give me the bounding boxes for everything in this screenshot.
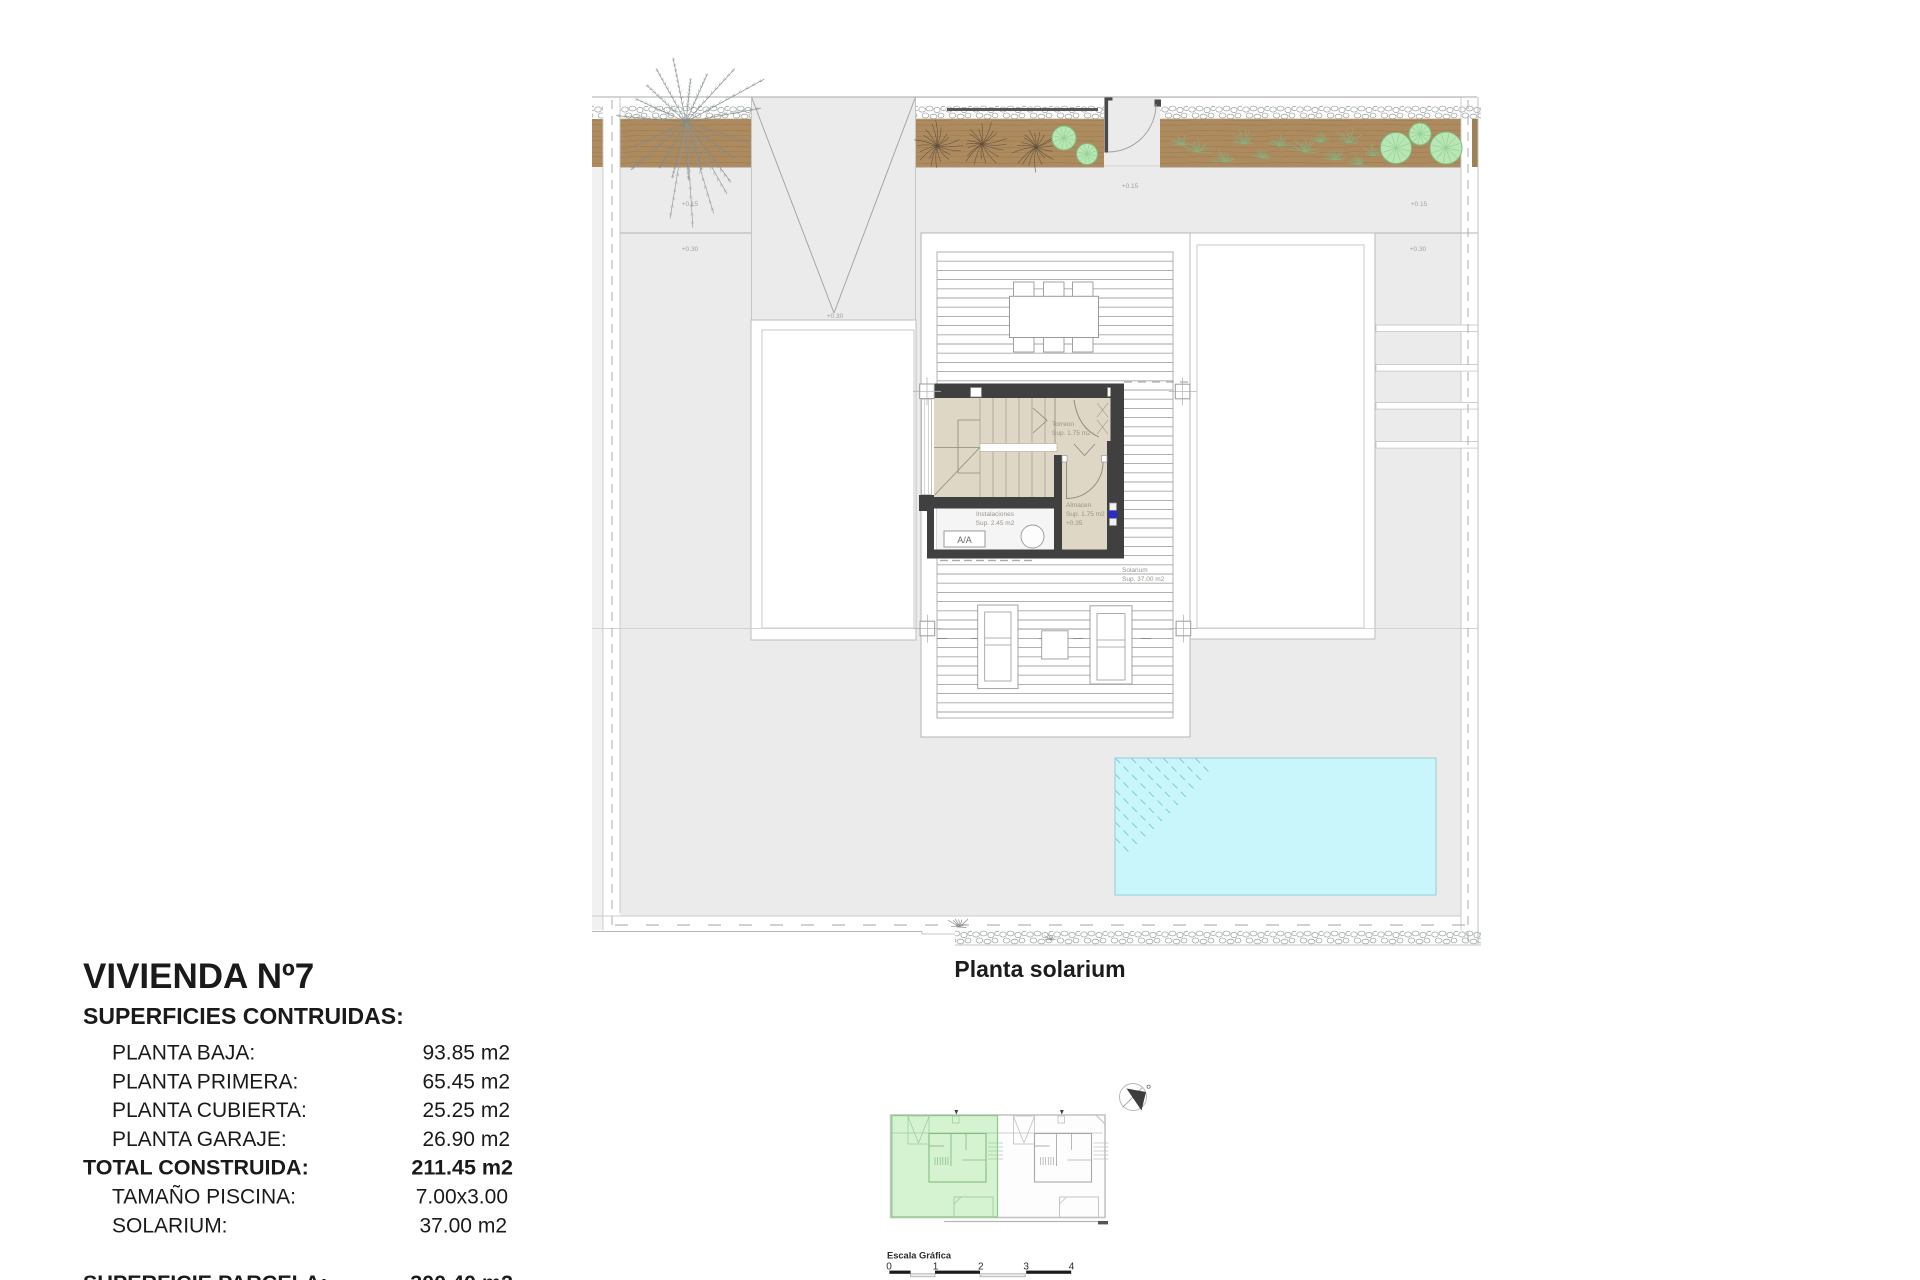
svg-text:Solarium: Solarium: [1122, 567, 1148, 574]
svg-text:Torreon: Torreon: [1052, 421, 1074, 428]
svg-text:211.45 m2: 211.45 m2: [411, 1156, 513, 1180]
svg-text:26.90 m2: 26.90 m2: [422, 1128, 510, 1151]
svg-text:25.25 m2: 25.25 m2: [422, 1099, 510, 1122]
svg-text:Planta solarium: Planta solarium: [954, 956, 1125, 982]
svg-text:SUPERFICIES CONTRUIDAS:: SUPERFICIES CONTRUIDAS:: [83, 1003, 404, 1029]
svg-text:VIVIENDA Nº7: VIVIENDA Nº7: [83, 957, 314, 996]
svg-text:Almacen: Almacen: [1066, 502, 1092, 509]
svg-text:300.40 m2: 300.40 m2: [410, 1271, 513, 1280]
svg-text:SUPERFICIE PARCELA:: SUPERFICIE PARCELA:: [83, 1271, 327, 1280]
svg-text:Sup. 1.75 m2: Sup. 1.75 m2: [1052, 430, 1091, 437]
svg-text:+0.30: +0.30: [827, 313, 844, 320]
svg-text:PLANTA BAJA:: PLANTA BAJA:: [112, 1042, 255, 1065]
svg-text:Instalaciones: Instalaciones: [976, 511, 1015, 518]
svg-text:TOTAL CONSTRUIDA:: TOTAL CONSTRUIDA:: [83, 1156, 309, 1180]
svg-text:Sup. 2.45 m2: Sup. 2.45 m2: [976, 520, 1015, 527]
svg-text:+0.15: +0.15: [1122, 183, 1139, 190]
svg-text:TAMAÑO PISCINA:: TAMAÑO PISCINA:: [112, 1185, 296, 1209]
svg-text:Escala Gráfica: Escala Gráfica: [887, 1251, 952, 1261]
svg-text:37.00 m2: 37.00 m2: [419, 1214, 507, 1237]
svg-text:A/A: A/A: [957, 535, 972, 545]
svg-text:65.45 m2: 65.45 m2: [422, 1070, 510, 1093]
svg-text:Sup. 1.75 m2: Sup. 1.75 m2: [1066, 511, 1105, 518]
svg-text:+0.35: +0.35: [1066, 520, 1083, 527]
svg-text:Sup. 37.00 m2: Sup. 37.00 m2: [1122, 576, 1165, 583]
svg-text:PLANTA CUBIERTA:: PLANTA CUBIERTA:: [112, 1099, 307, 1122]
svg-text:+0.15: +0.15: [1411, 201, 1428, 208]
svg-text:+0.30: +0.30: [1410, 246, 1427, 253]
svg-text:7.00x3.00: 7.00x3.00: [416, 1186, 508, 1209]
svg-text:+0.30: +0.30: [682, 246, 699, 253]
svg-text:PLANTA GARAJE:: PLANTA GARAJE:: [112, 1128, 287, 1151]
svg-text:PLANTA PRIMERA:: PLANTA PRIMERA:: [112, 1070, 298, 1093]
svg-text:93.85 m2: 93.85 m2: [422, 1042, 510, 1065]
svg-text:SOLARIUM:: SOLARIUM:: [112, 1214, 228, 1237]
